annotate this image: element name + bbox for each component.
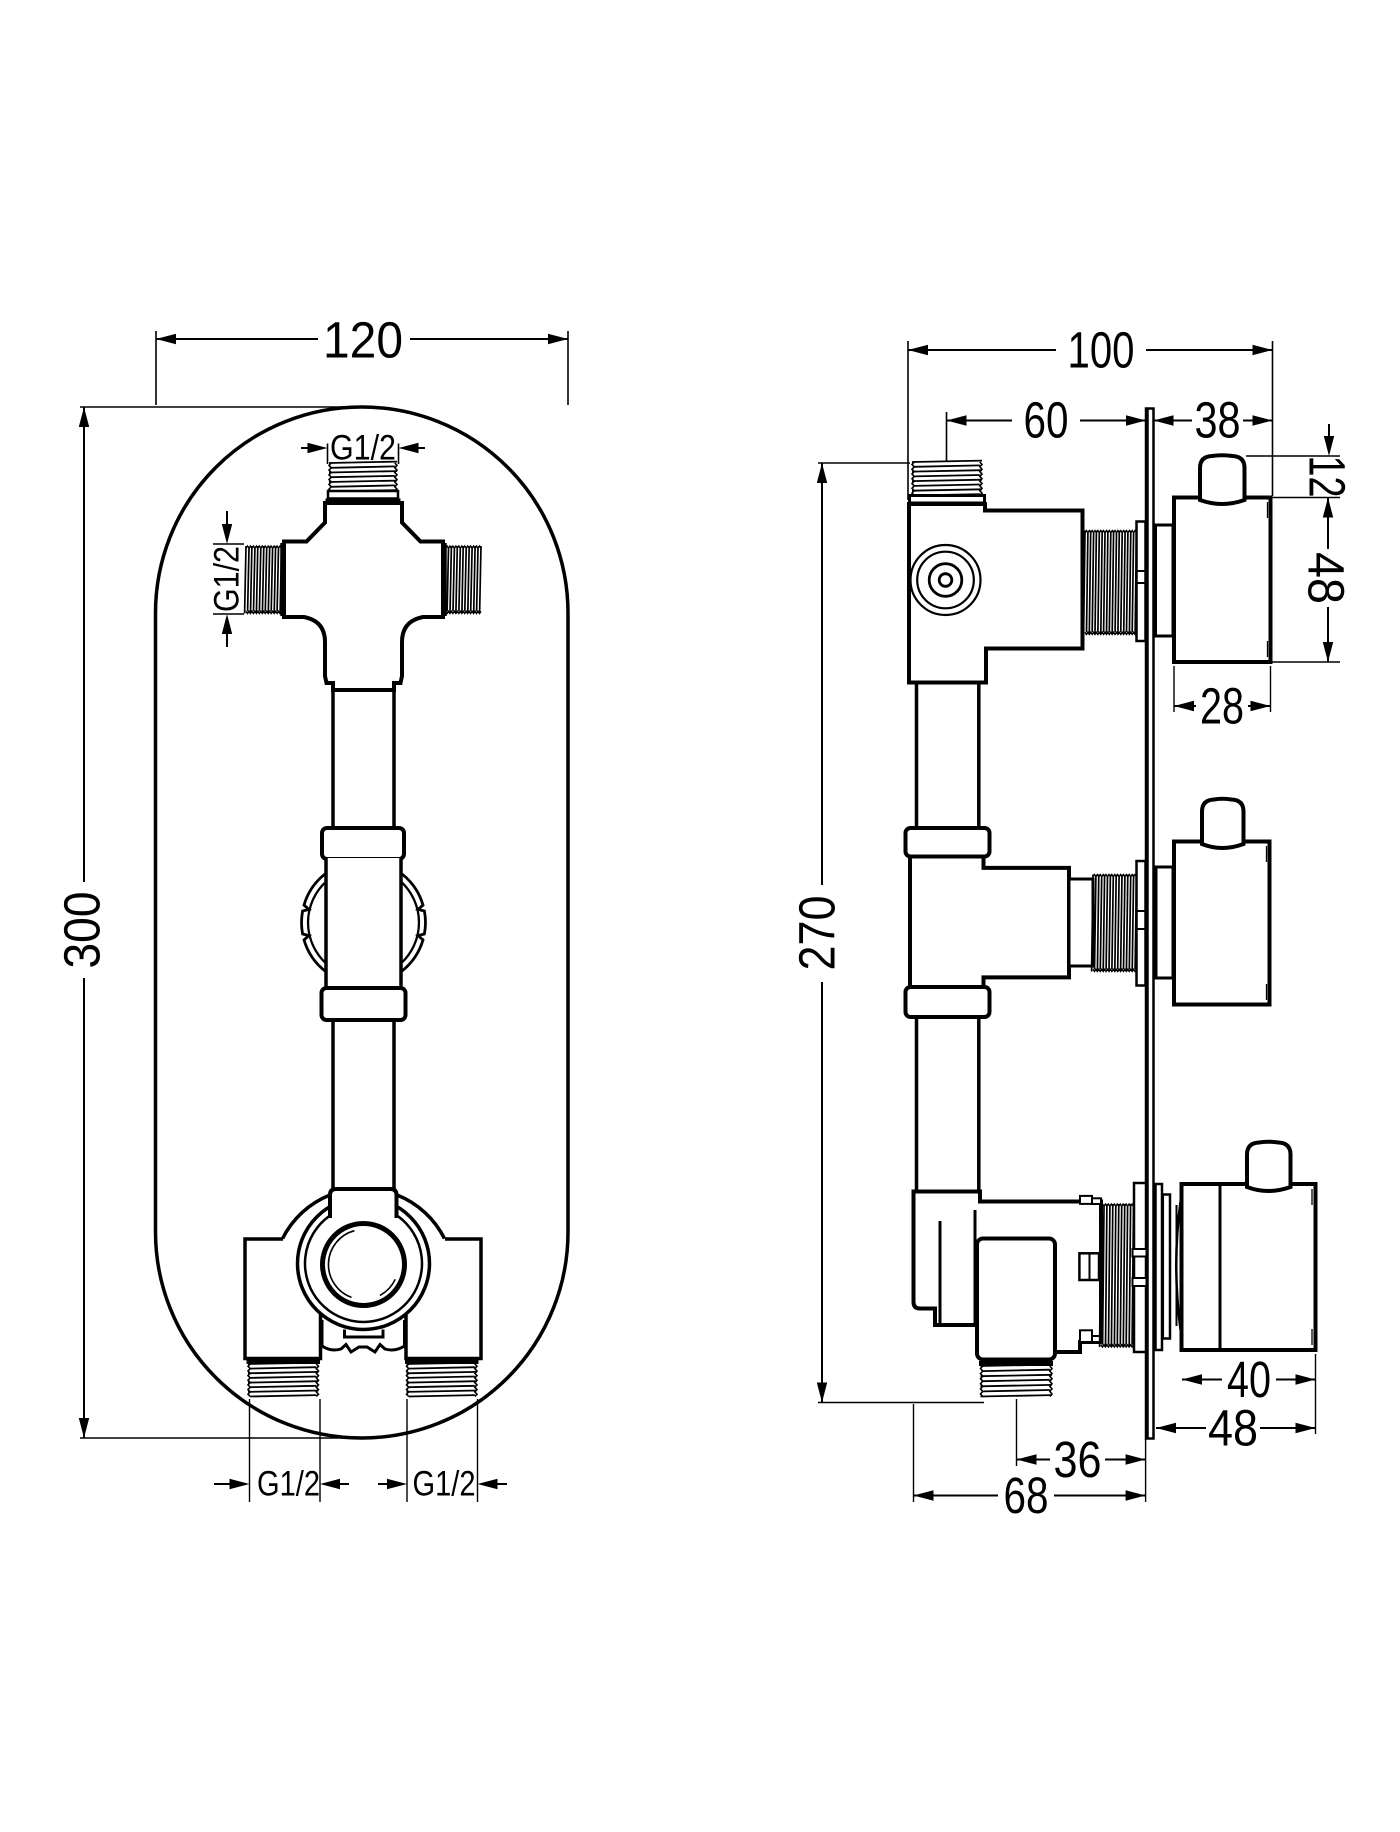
svg-text:48: 48 xyxy=(1208,1400,1258,1457)
svg-text:36: 36 xyxy=(1054,1431,1102,1488)
svg-text:G1/2: G1/2 xyxy=(257,1465,320,1504)
svg-text:100: 100 xyxy=(1068,322,1135,379)
svg-text:120: 120 xyxy=(323,312,403,369)
svg-text:68: 68 xyxy=(1004,1467,1049,1524)
svg-text:38: 38 xyxy=(1195,392,1241,449)
svg-text:G1/2: G1/2 xyxy=(208,546,247,612)
svg-text:28: 28 xyxy=(1200,678,1244,735)
svg-text:300: 300 xyxy=(54,892,111,969)
svg-text:12: 12 xyxy=(1299,456,1356,498)
svg-text:270: 270 xyxy=(789,896,846,971)
svg-text:G1/2: G1/2 xyxy=(413,1465,476,1504)
svg-text:60: 60 xyxy=(1024,392,1069,449)
svg-text:48: 48 xyxy=(1298,552,1355,604)
